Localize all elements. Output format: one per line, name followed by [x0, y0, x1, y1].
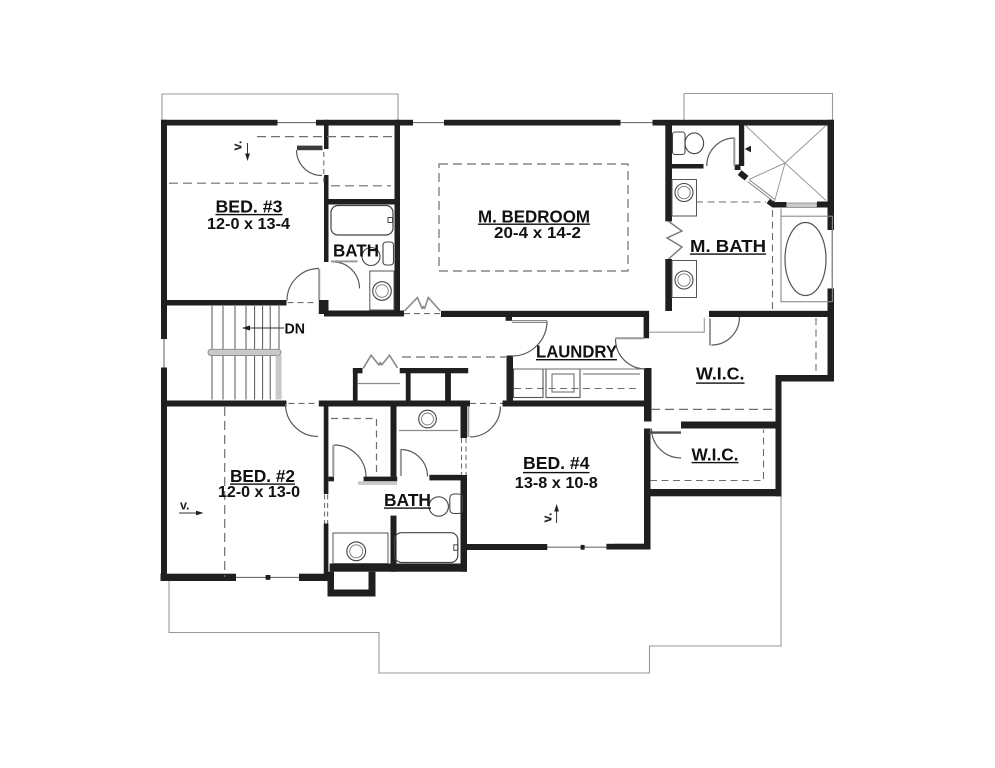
svg-text:v.: v.: [180, 499, 190, 513]
svg-text:20-4 x 14-2: 20-4 x 14-2: [494, 225, 581, 242]
svg-text:13-8 x 10-8: 13-8 x 10-8: [515, 475, 598, 492]
svg-text:M. BATH: M. BATH: [690, 236, 766, 256]
svg-text:12-0 x 13-4: 12-0 x 13-4: [207, 216, 290, 233]
svg-text:BATH: BATH: [384, 490, 431, 510]
svg-text:v.: v.: [231, 141, 245, 151]
svg-text:DN: DN: [285, 321, 306, 338]
svg-text:12-0 x 13-0: 12-0 x 13-0: [218, 484, 300, 501]
svg-text:BED. #4: BED. #4: [523, 453, 590, 473]
svg-text:W.I.C.: W.I.C.: [696, 364, 745, 384]
svg-text:M. BEDROOM: M. BEDROOM: [478, 206, 590, 226]
svg-text:BED. #3: BED. #3: [216, 197, 283, 217]
svg-text:LAUNDRY: LAUNDRY: [536, 342, 618, 362]
svg-text:BATH: BATH: [333, 241, 379, 261]
svg-text:W.I.C.: W.I.C.: [692, 445, 739, 465]
svg-text:v.: v.: [541, 513, 555, 523]
